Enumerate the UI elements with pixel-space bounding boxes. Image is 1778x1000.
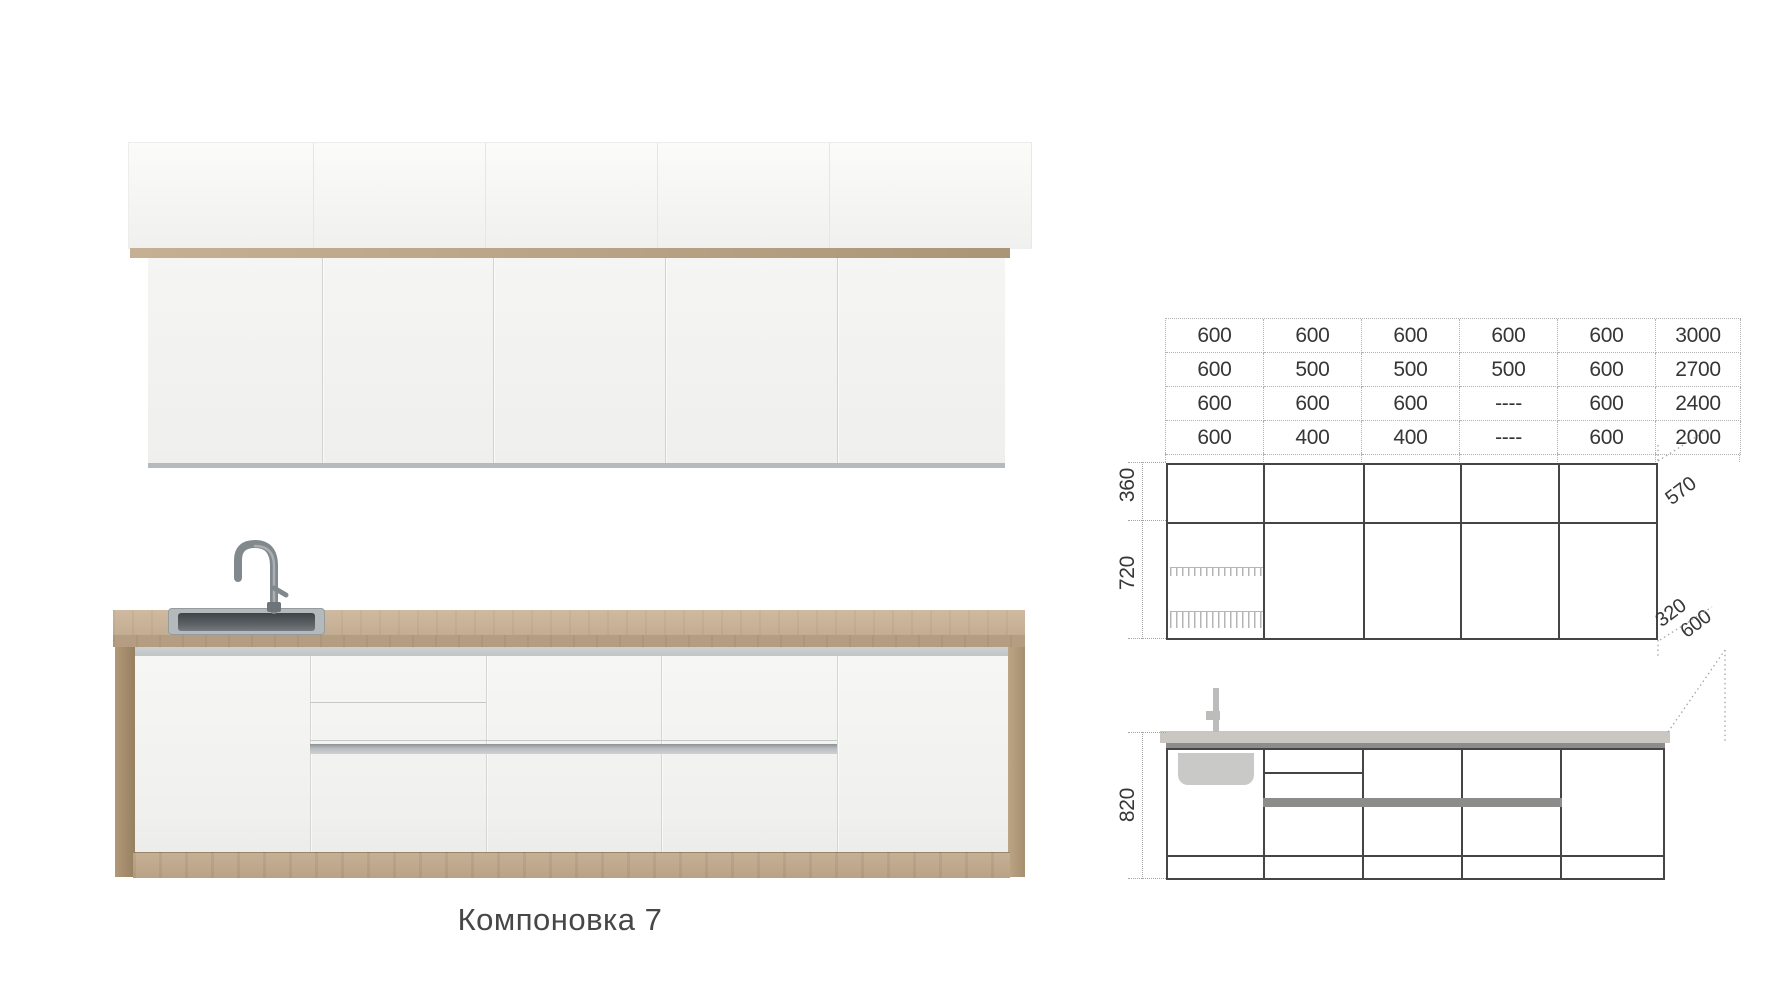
under-counter-reveal bbox=[135, 647, 1008, 656]
dimension-cell: 600 bbox=[1166, 387, 1264, 421]
dimension-cell: 600 bbox=[1460, 319, 1558, 353]
base-cabinets-elevation bbox=[1166, 748, 1665, 880]
upper-height-label-360: 360 bbox=[1116, 468, 1140, 502]
base-cabinet-doors bbox=[135, 656, 1008, 852]
elevation-divider bbox=[1363, 465, 1365, 638]
lower-height-label-820: 820 bbox=[1116, 788, 1140, 822]
elevation-divider bbox=[1263, 465, 1265, 638]
cabinet-door-seam bbox=[485, 143, 486, 249]
cabinet-door-seam bbox=[313, 143, 314, 249]
dimension-cell: 600 bbox=[1362, 387, 1460, 421]
upper-crown-cabinets bbox=[128, 142, 1032, 249]
dimension-cell: 600 bbox=[1362, 319, 1460, 353]
dimension-cell: 600 bbox=[1264, 319, 1362, 353]
cabinet-door-seam bbox=[493, 258, 494, 463]
dimension-cell: 400 bbox=[1264, 421, 1362, 455]
handle-bar bbox=[1263, 798, 1562, 807]
elevation-countertop bbox=[1160, 731, 1670, 743]
table-connector-line bbox=[1165, 453, 1166, 462]
dimension-cell: 600 bbox=[1558, 319, 1656, 353]
cabinet-door-seam bbox=[837, 656, 838, 852]
plinth-line bbox=[1168, 855, 1663, 857]
cabinet-door-seam bbox=[661, 656, 662, 852]
base-side-panel-left bbox=[115, 647, 135, 877]
cabinet-door-seam bbox=[665, 258, 666, 463]
dimension-cell: 600 bbox=[1558, 353, 1656, 387]
dimension-cell: 500 bbox=[1460, 353, 1558, 387]
sink-basin bbox=[178, 613, 315, 631]
dimension-cell: 600 bbox=[1166, 319, 1264, 353]
cabinet-door-seam bbox=[322, 258, 323, 463]
dimension-cell: ---- bbox=[1460, 421, 1558, 455]
dimension-tick bbox=[1128, 520, 1166, 521]
dimension-tick bbox=[1128, 638, 1166, 639]
dimension-cell: 500 bbox=[1264, 353, 1362, 387]
dimension-cell: 600 bbox=[1166, 353, 1264, 387]
faucet-icon bbox=[222, 530, 302, 615]
table-connector-line bbox=[1557, 453, 1558, 462]
dimension-cell: 500 bbox=[1362, 353, 1460, 387]
upper-cabinets-elevation bbox=[1166, 463, 1658, 640]
elevation-divider bbox=[1168, 522, 1656, 524]
table-connector-line bbox=[1263, 453, 1264, 462]
elevation-divider bbox=[1560, 750, 1562, 878]
dimension-cell: ---- bbox=[1460, 387, 1558, 421]
dimension-tick bbox=[1128, 732, 1166, 733]
cabinet-door-seam bbox=[310, 656, 311, 852]
dimension-cell: 3000 bbox=[1656, 319, 1741, 353]
cabinet-door-seam bbox=[486, 656, 487, 852]
recessed-handle-groove bbox=[310, 744, 837, 754]
table-connector-line bbox=[1361, 453, 1362, 462]
base-side-panel-right bbox=[1008, 647, 1025, 877]
dimension-cell: 400 bbox=[1362, 421, 1460, 455]
dimension-line bbox=[1142, 462, 1143, 639]
upper-height-label-720: 720 bbox=[1116, 556, 1140, 590]
cabinet-door-seam bbox=[657, 143, 658, 249]
dimension-line bbox=[1142, 732, 1143, 879]
kitchen-render bbox=[0, 0, 1060, 900]
elevation-divider bbox=[1263, 750, 1265, 878]
wood-plinth bbox=[133, 852, 1010, 878]
crown-wood-trim bbox=[130, 248, 1010, 258]
elevation-divider bbox=[1362, 750, 1364, 878]
dish-rack-ticks bbox=[1170, 612, 1263, 628]
faucet-handle-symbol bbox=[1206, 711, 1220, 720]
drawer-seam bbox=[310, 702, 486, 703]
elevation-divider bbox=[1461, 750, 1463, 878]
elevation-divider bbox=[1460, 465, 1462, 638]
table-connector-line bbox=[1459, 453, 1460, 462]
upper-doors-bottom-edge bbox=[148, 463, 1005, 468]
kitchen-layout-sheet: 6006006006006003000600500500500600270060… bbox=[0, 0, 1778, 1000]
sink-symbol bbox=[1178, 753, 1254, 785]
depth-dimension-lines bbox=[1630, 400, 1778, 820]
dimension-cell: 600 bbox=[1264, 387, 1362, 421]
faucet-symbol bbox=[1213, 688, 1219, 732]
dimension-cell: 2700 bbox=[1656, 353, 1741, 387]
dimension-tick bbox=[1128, 878, 1166, 879]
dimension-tick bbox=[1128, 462, 1166, 463]
drawer-divider bbox=[1263, 772, 1364, 774]
cabinet-door-seam bbox=[829, 143, 830, 249]
drawer-seam bbox=[310, 740, 837, 741]
cabinet-door-seam bbox=[837, 258, 838, 463]
dish-rack-ticks bbox=[1170, 568, 1263, 576]
upper-wall-doors bbox=[148, 258, 1005, 463]
countertop-front-edge bbox=[113, 635, 1025, 647]
elevation-divider bbox=[1558, 465, 1560, 638]
layout-caption: Компоновка 7 bbox=[380, 902, 740, 938]
dimension-cell: 600 bbox=[1166, 421, 1264, 455]
